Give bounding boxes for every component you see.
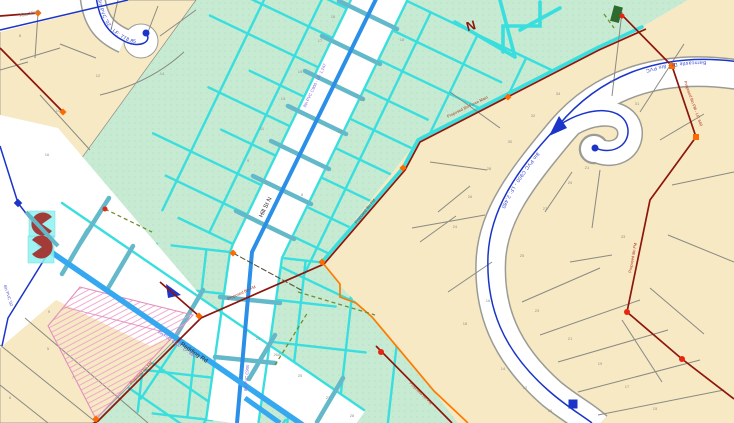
lot-number: 16	[331, 14, 336, 19]
lot-number: 25	[520, 253, 525, 258]
lot-number: 15	[653, 406, 658, 411]
lot-number: 23	[535, 308, 540, 313]
lot-number: 12	[96, 73, 101, 78]
lot-number: 19	[598, 361, 603, 366]
lot-number: 27	[543, 206, 548, 211]
lot-number: 12	[338, 129, 343, 134]
lot-number: 36	[610, 79, 615, 84]
lot-number: 33	[621, 234, 626, 239]
gis-map-viewport: Barncastle Dr - 8in PVC 8in PVC C900 - L…	[0, 0, 734, 423]
lot-number: 17	[625, 384, 630, 389]
lot-number: 21	[585, 165, 590, 170]
lot-number: 10	[548, 408, 553, 413]
lot-number: 23	[256, 336, 261, 341]
lot-number: 29	[568, 180, 573, 185]
lot-number: 17	[318, 38, 323, 43]
lot-number: 30	[508, 139, 513, 144]
valve-node-blue-square	[569, 400, 578, 409]
lot-number: 15	[298, 69, 303, 74]
lot-number: 25	[298, 373, 303, 378]
lot-number: 16	[486, 298, 491, 303]
orange-square-marker	[693, 134, 699, 140]
lot-number: 32	[531, 113, 536, 118]
lot-number: 26	[468, 194, 473, 199]
lot-number: 18	[400, 37, 405, 42]
lot-number: 14	[360, 97, 365, 102]
lot-number: 14	[160, 71, 165, 76]
lot-number: 12	[523, 385, 528, 390]
lot-number: 28	[487, 166, 492, 171]
lot-number: 31	[635, 101, 640, 106]
lot-number: 28	[350, 413, 355, 418]
lot-number: 24	[453, 224, 458, 229]
lot-number: 21	[568, 336, 573, 341]
lot-number: 16	[45, 152, 50, 157]
lot-number: 14	[501, 366, 506, 371]
lot-number: 13	[281, 96, 286, 101]
lot-number: 34	[556, 91, 561, 96]
map-canvas[interactable]: Barncastle Dr - 8in PVC 8in PVC C900 - L…	[0, 0, 734, 423]
selected-features[interactable]	[26, 211, 58, 263]
lot-number: 26A	[273, 352, 280, 357]
lot-number: 27	[326, 395, 331, 400]
lot-number: 18	[463, 321, 468, 326]
lot-number: 10	[56, 108, 61, 113]
